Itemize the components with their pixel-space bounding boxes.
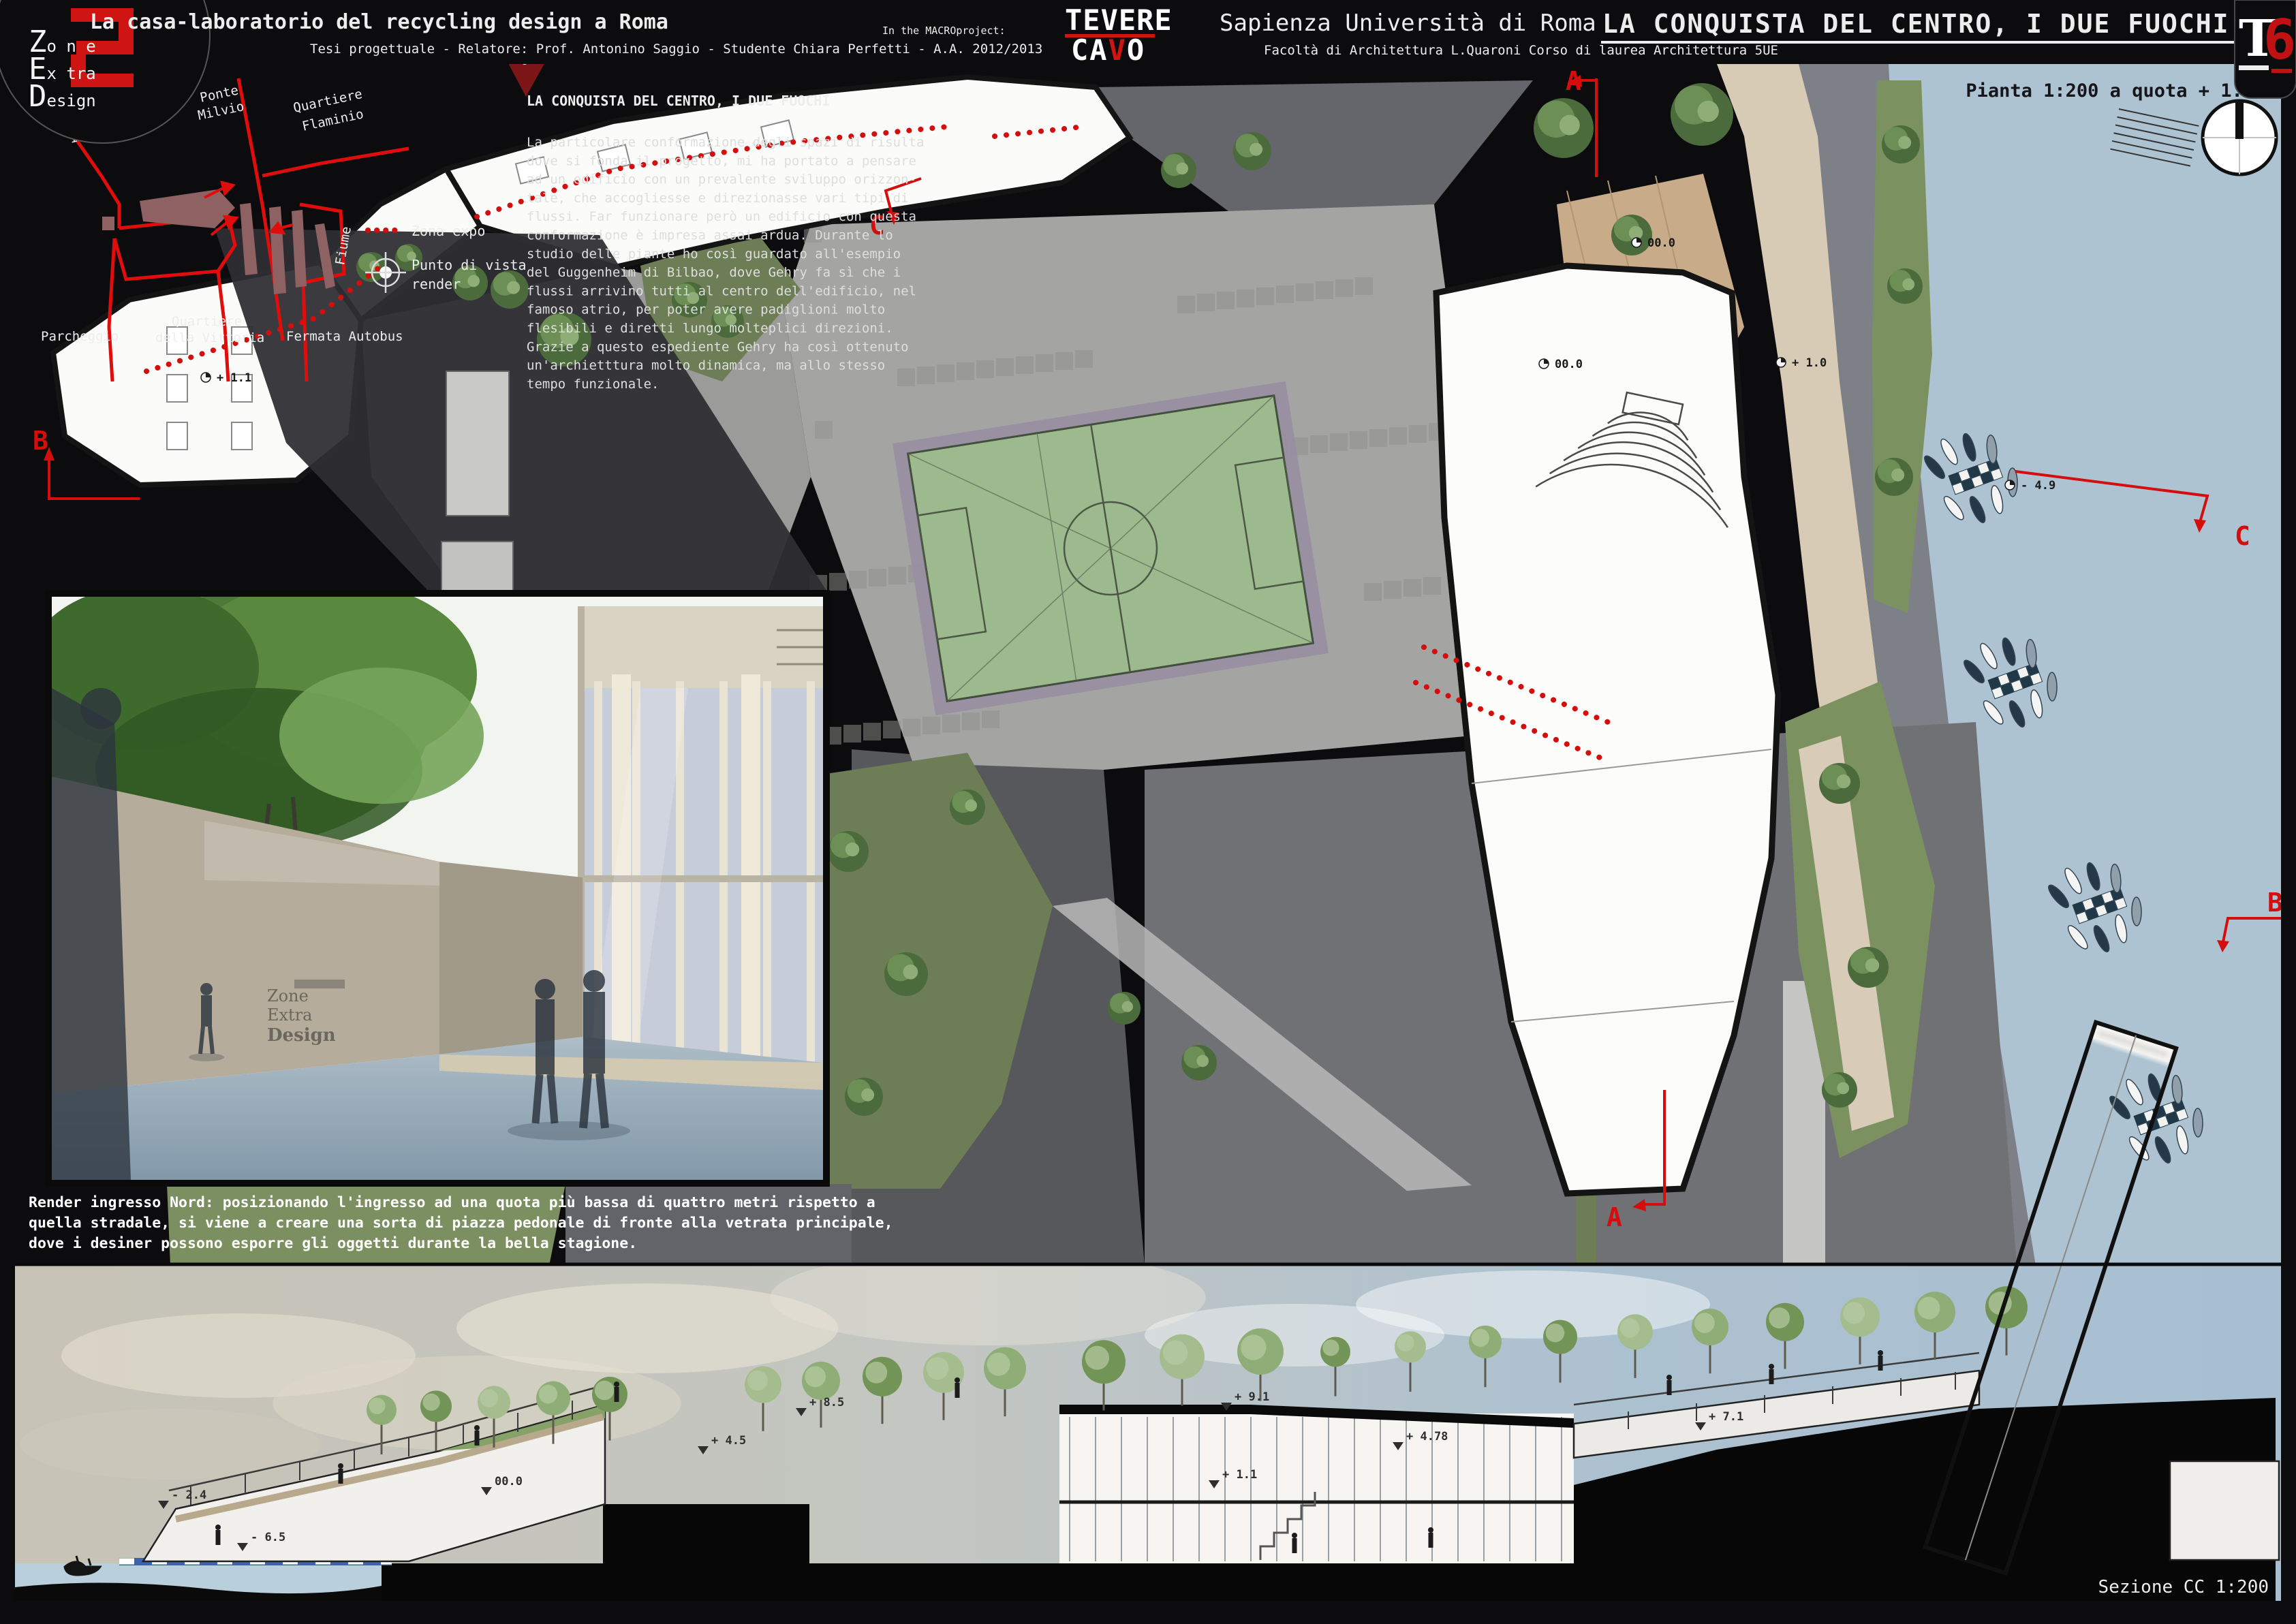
plan-scale-label: Pianta 1:200 a quota + 1.5 xyxy=(1966,80,2254,101)
frame-left xyxy=(0,0,15,1624)
intro-line: tale, che accogliesse e direzionasse var… xyxy=(527,191,909,206)
marker-b-left: B xyxy=(33,426,48,456)
plaza-tile xyxy=(1330,433,1348,451)
section-tree xyxy=(865,1362,887,1384)
person xyxy=(216,1530,221,1545)
svg-text:TEVERE: TEVERE xyxy=(1065,3,1173,37)
plaza-tile xyxy=(897,369,915,386)
plaza-tile xyxy=(1384,581,1401,599)
intro-line: flussi. Far funzionare però un edificio … xyxy=(527,209,916,224)
plaza-tile xyxy=(1369,429,1387,447)
plaza-tile xyxy=(903,719,920,736)
section-tree xyxy=(927,1357,949,1379)
board-title-underline xyxy=(1601,41,2241,44)
person xyxy=(615,1387,619,1402)
plaza-tile xyxy=(996,358,1014,376)
plaza-tile xyxy=(869,569,886,587)
svg-text:Fermata Autobus: Fermata Autobus xyxy=(286,329,403,344)
frame-right xyxy=(2281,0,2296,1624)
plaza-tile xyxy=(1237,290,1254,307)
render-caption-line: quella stradale, si viene a creare una s… xyxy=(29,1215,893,1232)
section-tree xyxy=(747,1371,768,1391)
plaza-tile xyxy=(937,364,955,382)
tree xyxy=(467,275,480,287)
section-tree xyxy=(422,1394,439,1411)
plaza-tile xyxy=(1409,425,1427,443)
intro-line: flussi arrivino tutti al centro dell'edi… xyxy=(527,283,916,298)
plaza-tile xyxy=(942,715,960,732)
tree xyxy=(903,965,918,980)
marker-b-right: B xyxy=(2267,888,2283,918)
tree xyxy=(1122,1001,1133,1012)
svg-text:Zone: Zone xyxy=(267,986,309,1005)
plaza-tile xyxy=(922,717,940,734)
section-tree xyxy=(1694,1313,1715,1333)
tree xyxy=(1891,469,1904,482)
plaza-tile xyxy=(1197,294,1215,311)
plaza-tile xyxy=(1310,435,1328,453)
plaza-tile xyxy=(843,725,861,743)
plaza-tile xyxy=(1423,577,1441,595)
intro-line: famoso atrio, per poter avere padiglioni… xyxy=(527,302,885,317)
tree xyxy=(965,800,977,812)
svg-text:Quartiere: Quartiere xyxy=(172,314,242,329)
svg-text:Parcheggio: Parcheggio xyxy=(41,329,119,344)
section-tree xyxy=(1163,1340,1188,1364)
plaza-tile xyxy=(982,710,999,728)
tree xyxy=(1176,163,1188,175)
plaza-tile xyxy=(1350,431,1367,449)
plaza-tile xyxy=(1355,277,1373,295)
section-level-mark: + 7.1 xyxy=(1709,1410,1743,1424)
section-tree xyxy=(1918,1297,1940,1319)
person xyxy=(1878,1356,1883,1371)
plaza-tile xyxy=(976,360,994,378)
section-tree xyxy=(595,1381,615,1401)
board-svg: A A B B C C + 1.100.000.0+ 1.0- 4.9 xyxy=(0,0,2296,1624)
plaza-tile xyxy=(917,366,935,384)
intro-line: La particolare conformazione degli spazi… xyxy=(527,135,924,150)
section-level-mark: - 6.5 xyxy=(251,1531,285,1544)
tree xyxy=(507,281,520,294)
section-tree xyxy=(1322,1339,1339,1356)
intro-line: Grazie a questo espediente Gehry ha così… xyxy=(527,339,909,354)
canoe xyxy=(2193,1108,2203,1137)
intro-line: conformazione è impresa assai ardua. Dur… xyxy=(527,228,893,243)
plan-level-mark: 00.0 xyxy=(1555,358,1583,371)
plaza-tile xyxy=(1296,283,1314,301)
plaza-tile xyxy=(1335,279,1353,297)
person xyxy=(955,1383,960,1398)
north-clock-icon xyxy=(2203,101,2276,174)
section-level-mark: 00.0 xyxy=(495,1475,523,1488)
plan-level-mark: - 4.9 xyxy=(2021,479,2055,493)
person xyxy=(1429,1533,1433,1548)
board-subtitle: Tesi progettuale - Relatore: Prof. Anton… xyxy=(310,42,1042,57)
person xyxy=(215,1525,221,1530)
section-white-box-right xyxy=(2170,1461,2279,1560)
section-level-mark: + 4.5 xyxy=(711,1434,746,1448)
presentation-board: { "header": { "logo": {"l1_cap":"Z","l1_… xyxy=(0,0,2296,1624)
intro-line: dove si fonda il progetto, mi ha portato… xyxy=(527,153,916,168)
section-tree xyxy=(1241,1334,1266,1360)
board-code-t6: T 6 xyxy=(2235,0,2296,98)
tree xyxy=(1560,115,1580,136)
plaza-tile xyxy=(815,421,833,439)
tree xyxy=(1837,1082,1849,1095)
section-building-interior xyxy=(1059,1414,1574,1563)
intro-heading: LA CONQUISTA DEL CENTRO, I DUE FUOCHI xyxy=(527,93,831,109)
plaza-tile xyxy=(1217,292,1235,309)
section-level-mark: + 9.1 xyxy=(1235,1390,1269,1404)
tree xyxy=(861,1089,874,1102)
tree xyxy=(1837,775,1850,788)
plaza-tile xyxy=(1016,356,1034,374)
frame-bottom xyxy=(0,1601,2296,1624)
legend-punto-label-2: render xyxy=(412,276,461,292)
section-label: Sezione CC 1:200 xyxy=(2098,1577,2269,1597)
marker-a-bottom: A xyxy=(1607,1202,1622,1232)
render-glass-building xyxy=(578,606,823,1083)
plaza-tile xyxy=(957,362,974,380)
table xyxy=(232,422,252,450)
person xyxy=(1428,1527,1433,1533)
section-tree xyxy=(987,1353,1010,1376)
person xyxy=(1666,1375,1672,1380)
zed-logo-text: Zo n e Ex tra Design xyxy=(29,25,96,114)
section-tree xyxy=(805,1367,826,1388)
plaza-tile xyxy=(883,721,901,738)
section-level-mark: + 8.5 xyxy=(809,1396,844,1409)
person xyxy=(1292,1538,1297,1553)
board-title: LA CONQUISTA DEL CENTRO, I DUE FUOCHI xyxy=(1602,9,2229,39)
section-tree xyxy=(539,1385,558,1403)
section-tree xyxy=(1546,1324,1565,1343)
person xyxy=(474,1425,480,1431)
marker-c-right: C xyxy=(2235,521,2250,551)
person xyxy=(955,1377,960,1383)
plaza-tile xyxy=(1403,579,1421,597)
person xyxy=(475,1431,480,1446)
section-tree xyxy=(1843,1302,1865,1324)
person xyxy=(1769,1364,1774,1369)
plaza-tile xyxy=(849,571,867,589)
section-tree xyxy=(1472,1329,1489,1347)
university-name: Sapienza Università di Roma xyxy=(1220,10,1596,37)
section-tree xyxy=(1397,1334,1414,1352)
svg-text:Design: Design xyxy=(267,1025,336,1046)
plan-level-mark: + 1.1 xyxy=(217,371,251,385)
section-level-mark: - 2.4 xyxy=(172,1488,206,1502)
person xyxy=(614,1381,619,1387)
plaza-tile xyxy=(829,573,847,591)
plaza-tile xyxy=(1075,350,1093,368)
plaza-tile xyxy=(863,723,881,740)
render-caption-line: dove i desiner possono esporre gli ogget… xyxy=(29,1235,637,1252)
plaza-tile xyxy=(1055,352,1073,370)
intro-line: un'archietttura molto dinamica, ma allo … xyxy=(527,358,885,373)
macroproject-label: In the MACROproject: xyxy=(882,25,1006,37)
faculty-name: Facoltà di Architettura L.Quaroni Corso … xyxy=(1264,43,1778,58)
legend-punto-label-1: Punto di vista xyxy=(412,257,527,273)
svg-text:6: 6 xyxy=(2263,8,2296,72)
legend-zona-expo-label: Zona expo xyxy=(412,223,485,239)
person xyxy=(1878,1350,1883,1356)
tree xyxy=(1250,143,1262,156)
tree xyxy=(1865,958,1879,972)
plaza-tile xyxy=(1364,583,1382,601)
section-level-mark: + 1.1 xyxy=(1222,1468,1257,1482)
plaza-tile xyxy=(1036,354,1053,372)
intro-line: ad un edificio con un prevalente svilupp… xyxy=(527,172,916,187)
render-inset: Zone Extra Design xyxy=(20,579,830,1187)
render-caption-line: Render ingresso Nord: posizionando l'ing… xyxy=(29,1194,875,1211)
section-level-mark: + 4.78 xyxy=(1406,1430,1448,1443)
person xyxy=(1667,1380,1672,1395)
tree xyxy=(1698,101,1719,122)
person xyxy=(1769,1369,1774,1384)
intro-line: del Guggenheim di Bilbao, dove Gehry fa … xyxy=(527,265,901,280)
board-title-block: LA CONQUISTA DEL CENTRO, I DUE FUOCHI xyxy=(1601,9,2241,44)
section-tree xyxy=(369,1398,385,1414)
board-main-title: La casa-laboratorio del recycling design… xyxy=(90,10,668,34)
intro-line: flesibili e diretti lungo molteplici dir… xyxy=(527,321,893,336)
plan-level-mark: 00.0 xyxy=(1647,236,1675,250)
tree xyxy=(1902,279,1914,291)
plaza-tile xyxy=(888,567,906,584)
marker-a-top: A xyxy=(1566,66,1581,96)
tree xyxy=(1898,136,1911,149)
canoe xyxy=(2047,672,2058,701)
canoe xyxy=(2132,897,2142,926)
intro-line: studio delle piante ho così guardato all… xyxy=(527,247,901,262)
plaza-tile xyxy=(962,713,980,730)
svg-text:Extra: Extra xyxy=(267,1005,312,1025)
section-tree xyxy=(1769,1307,1790,1328)
person xyxy=(339,1469,343,1484)
section-tree xyxy=(480,1389,498,1407)
plaza-tile xyxy=(1177,296,1195,313)
plan-level-mark: + 1.0 xyxy=(1792,356,1827,370)
tree xyxy=(846,843,859,856)
tree xyxy=(1196,1055,1209,1067)
plaza-tile xyxy=(1389,427,1407,445)
person xyxy=(1292,1533,1297,1538)
gray-block-1 xyxy=(446,371,509,516)
person xyxy=(338,1463,343,1469)
svg-text:della Vittoria: della Vittoria xyxy=(155,330,264,345)
plaza-tile xyxy=(1316,281,1333,299)
plaza-tile xyxy=(1256,287,1274,305)
section-tree xyxy=(1085,1346,1109,1370)
section-tree xyxy=(1620,1318,1640,1338)
svg-text:CAVO: CAVO xyxy=(1071,33,1145,67)
table xyxy=(167,422,187,450)
table xyxy=(167,375,187,402)
intro-line: tempo funzionale. xyxy=(527,377,659,392)
plaza-tile xyxy=(1276,285,1294,303)
